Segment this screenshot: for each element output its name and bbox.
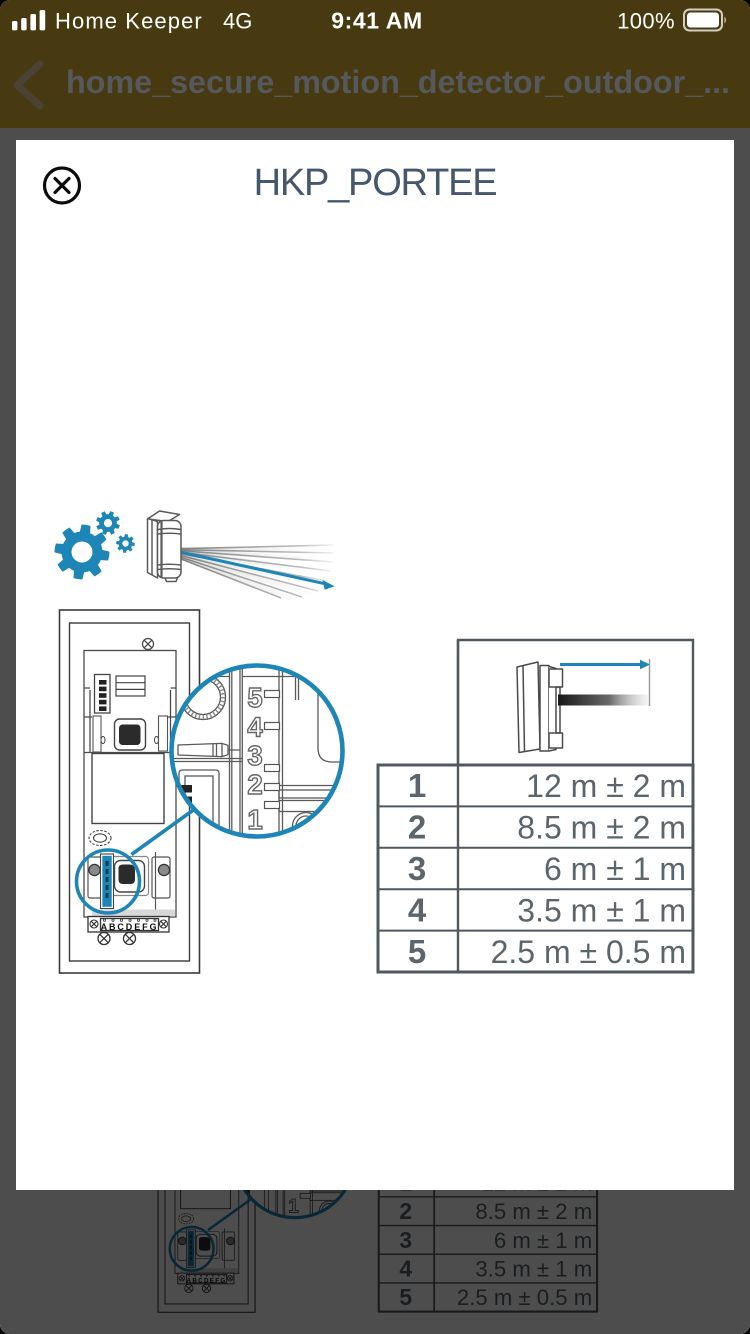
svg-text:4G: 4G xyxy=(223,9,252,34)
svg-text:9:41 AM: 9:41 AM xyxy=(331,8,423,34)
svg-text:100%: 100% xyxy=(617,9,675,34)
svg-text:Home Keeper: Home Keeper xyxy=(55,9,203,34)
